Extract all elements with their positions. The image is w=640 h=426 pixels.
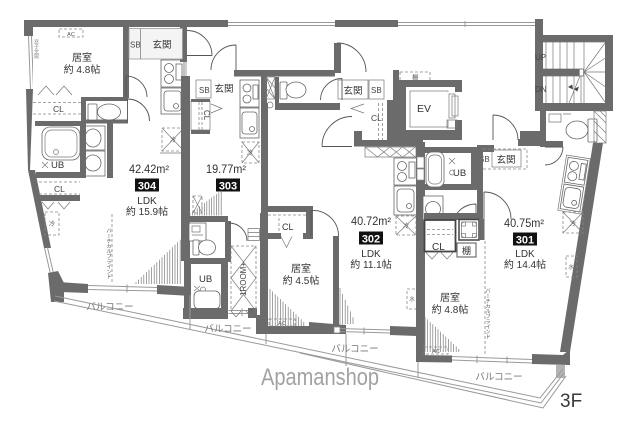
svg-text:CL: CL	[371, 113, 382, 123]
svg-text:約 11.1帖: 約 11.1帖	[350, 258, 392, 271]
svg-text:304: 304	[138, 180, 157, 192]
svg-text:玄関: 玄関	[214, 83, 233, 95]
svg-text:窓子全開: 窓子全開	[33, 38, 39, 59]
svg-text:冷: 冷	[403, 222, 409, 230]
svg-text:冷: 冷	[570, 220, 576, 228]
svg-text:SB: SB	[130, 41, 141, 50]
svg-text:40.75m²: 40.75m²	[504, 218, 544, 230]
svg-text:42.42m²: 42.42m²	[129, 164, 169, 176]
svg-text:3F: 3F	[560, 391, 582, 412]
svg-text:居室: 居室	[440, 291, 460, 304]
svg-text:Apamanshop: Apamanshop	[261, 364, 379, 391]
svg-text:居室: 居室	[291, 262, 311, 275]
svg-text:冷: 冷	[49, 220, 55, 228]
svg-text:約 15.9帖: 約 15.9帖	[126, 205, 168, 218]
svg-text:LDK: LDK	[515, 249, 535, 260]
svg-text:AC: AC	[432, 349, 440, 355]
svg-text:バーチカルブラインド: バーチカルブラインド	[484, 288, 491, 340]
svg-text:302: 302	[362, 233, 380, 245]
svg-text:CL: CL	[202, 110, 211, 121]
svg-text:AC: AC	[278, 321, 286, 327]
svg-text:約 4.8帖: 約 4.8帖	[432, 303, 469, 316]
svg-text:玄関: 玄関	[496, 154, 515, 166]
svg-text:UB: UB	[199, 274, 212, 285]
svg-text:冷: 冷	[247, 149, 253, 157]
svg-text:LDK: LDK	[137, 196, 157, 207]
svg-text:居室: 居室	[72, 51, 92, 64]
svg-text:1ROOM+: 1ROOM+	[239, 262, 248, 296]
svg-text:約 14.4帖: 約 14.4帖	[504, 258, 546, 271]
svg-text:301: 301	[516, 234, 534, 246]
svg-text:棚: 棚	[462, 245, 471, 256]
svg-text:バーチカルブラインド: バーチカルブラインド	[105, 228, 112, 280]
svg-text:水: 水	[568, 263, 574, 271]
svg-text:SB: SB	[371, 86, 382, 95]
svg-text:UP: UP	[535, 53, 546, 62]
svg-text:CL: CL	[54, 184, 65, 194]
svg-text:玄関: 玄関	[343, 85, 362, 97]
svg-text:CL: CL	[282, 222, 294, 232]
svg-text:約 4.8帖: 約 4.8帖	[64, 63, 101, 76]
svg-text:19.77m²: 19.77m²	[206, 164, 246, 176]
svg-text:AC: AC	[67, 32, 75, 38]
svg-text:CL: CL	[432, 242, 445, 253]
svg-text:40.72m²: 40.72m²	[351, 216, 391, 228]
svg-text:SB: SB	[199, 86, 210, 95]
svg-text:303: 303	[219, 180, 237, 192]
svg-text:玄関: 玄関	[152, 39, 171, 51]
svg-text:水: 水	[409, 295, 415, 303]
svg-text:DN: DN	[535, 85, 547, 94]
svg-text:冷: 冷	[170, 136, 176, 144]
svg-text:バルコニー: バルコニー	[475, 372, 522, 383]
svg-text:UB: UB	[453, 168, 466, 179]
svg-text:バルコニー: バルコニー	[331, 344, 378, 355]
svg-text:バルコニー: バルコニー	[86, 302, 133, 313]
svg-text:約 4.5帖: 約 4.5帖	[283, 274, 320, 287]
svg-text:CL: CL	[53, 104, 64, 114]
svg-text:LDK: LDK	[361, 249, 381, 260]
svg-text:バルコニー: バルコニー	[204, 324, 251, 335]
svg-text:EV: EV	[417, 103, 431, 115]
svg-text:UB: UB	[51, 160, 64, 171]
